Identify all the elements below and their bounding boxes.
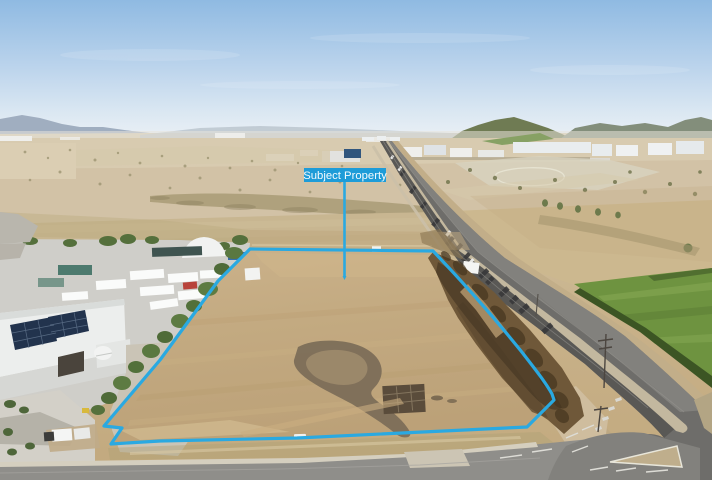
svg-text:Subject Property: Subject Property bbox=[303, 170, 387, 182]
